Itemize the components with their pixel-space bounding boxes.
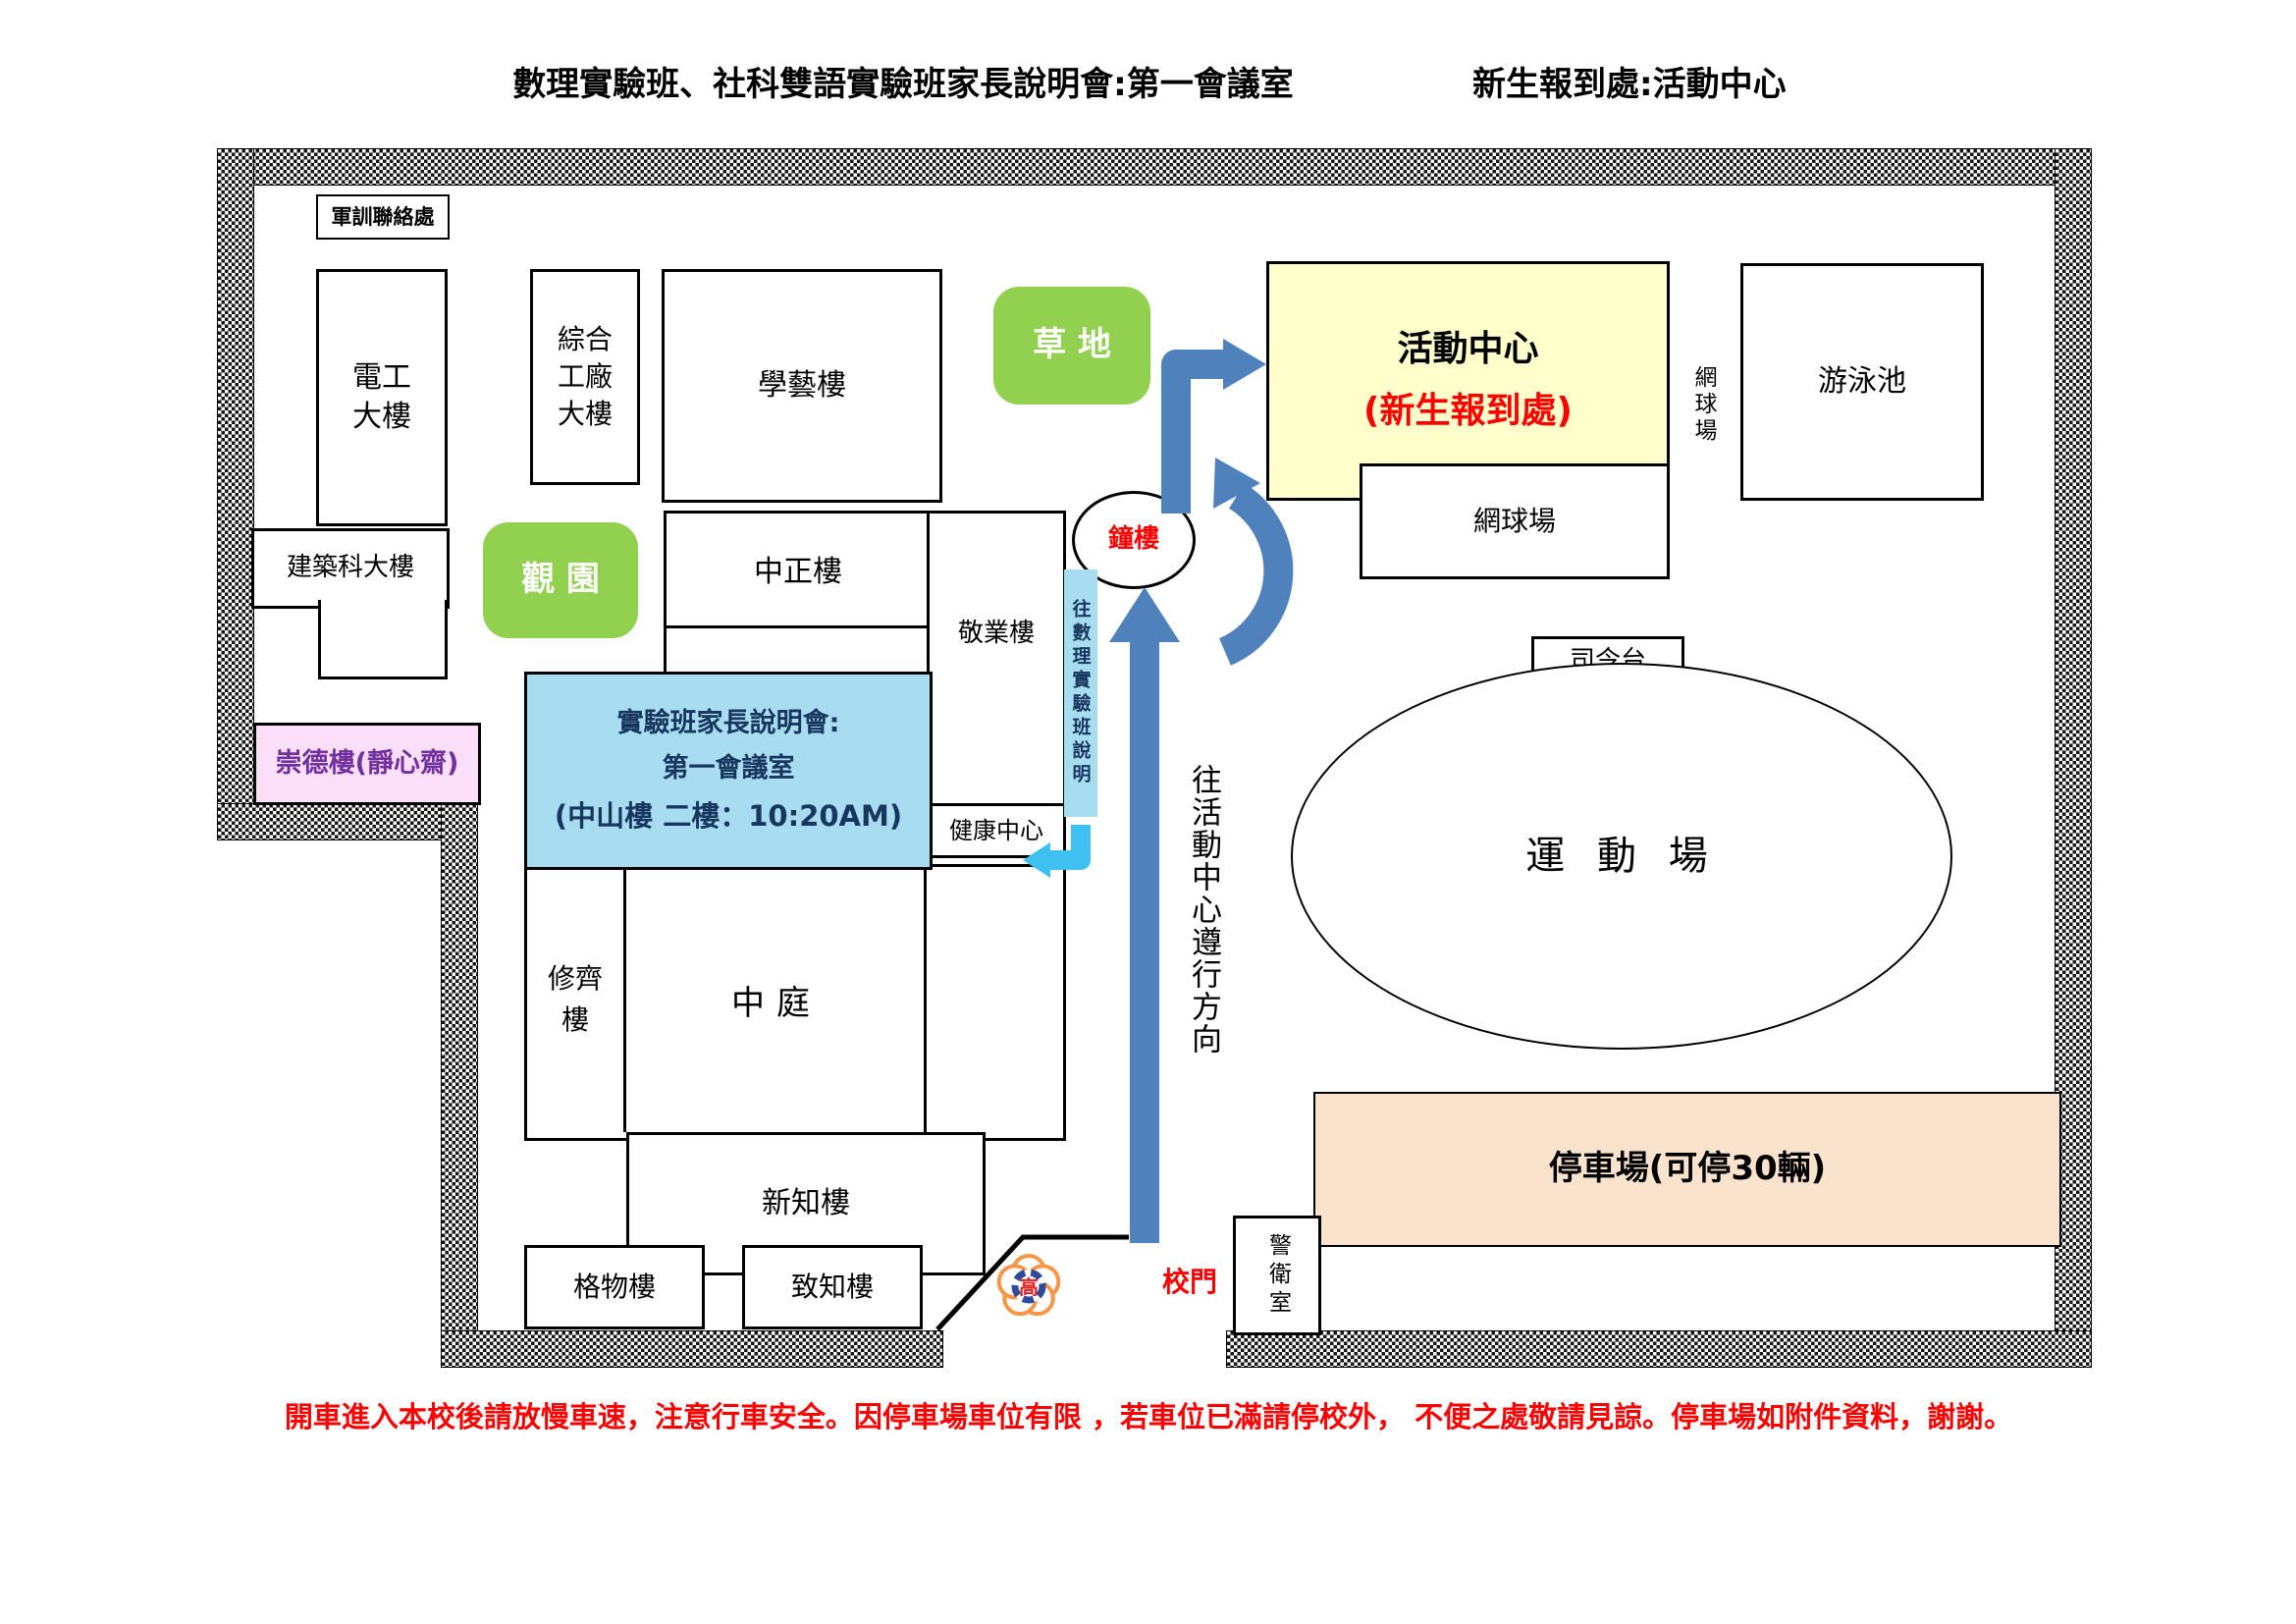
arrowhead-around-clocktower [1213,458,1260,509]
activity-center-name: 活動中心 [1397,326,1538,374]
briefing-line-3: (中山樓 二樓：10:20AM) [555,797,902,836]
guard-house: 警衛室 [1233,1216,1321,1335]
route-label-to-briefing: 往數理實驗班說明 [1064,569,1097,817]
logo-ring [1015,1272,1042,1300]
wall-left-lower [442,804,477,1367]
building-architecture-wing [318,600,448,679]
building-chongde: 崇德樓(靜心齋) [253,723,481,805]
arrow-around-clocktower [1225,496,1278,652]
briefing-line-2: 第一會議室 [663,751,795,786]
driving-notice: 開車進入本校後請放慢車速，注意行車安全。因停車場車位有限 ，若車位已滿請停校外，… [167,1394,2130,1435]
tennis-court: 網球場 [1360,463,1670,579]
wall-top [218,149,2091,185]
briefing-line-1: 實驗班家長說明會: [617,706,840,741]
sports-field: 運 動 場 [1291,663,1952,1050]
building-zhizhi: 致知樓 [742,1245,923,1329]
tennis-court-vertical-label: 網球場 [1686,365,1720,445]
wall-left-upper [218,149,253,839]
building-xiuqi: 修齊 樓 [524,864,626,1135]
building-electrical: 電工 大樓 [316,269,448,526]
garden-area: 觀 園 [483,522,638,638]
logo-petals [999,1256,1059,1314]
building-military-office: 軍訓聯絡處 [316,194,450,240]
route-label-to-activity-center: 往活動中心遵行方向 [1182,764,1226,1056]
building-health-center: 健康中心 [927,803,1066,858]
briefing-room-callout: 實驗班家長說明會: 第一會議室 (中山樓 二樓：10:20AM) [524,672,933,870]
activity-center-registration: (新生報到處) [1363,388,1573,436]
page-title-left: 數理實驗班、社科雙語實驗班家長說明會:第一會議室 [471,57,1335,105]
building-gewu: 格物樓 [524,1245,705,1329]
building-jingye-label: 敬業樓 [958,617,1035,651]
courtyard-label: 中庭 [626,864,927,1135]
building-architecture: 建築科大樓 [251,528,450,609]
arrow-to-activity-center [1176,364,1229,514]
page-title-right: 新生報到處:活動中心 [1472,57,1787,105]
arrowhead-to-activity-center [1223,339,1266,390]
arrow-gate-to-clocktower [1109,587,1180,1243]
gate-label: 校門 [1162,1261,1217,1300]
wall-bottom-right [1227,1331,2091,1367]
grass-area: 草 地 [993,287,1150,405]
wall-left-step [218,804,477,839]
campus-map: 數理實驗班、社科雙語實驗班家長說明會:第一會議室 新生報到處:活動中心 軍訓聯絡… [0,0,2296,1624]
wall-bottom-left [442,1331,942,1367]
guard-house-label: 警衛室 [1261,1233,1292,1319]
building-zhongzheng: 中正樓 [664,511,933,634]
logo-character: 高 [1019,1275,1039,1299]
building-workshop: 綜合 工廠 大樓 [530,269,640,485]
parking-lot: 停車場(可停30輛) [1313,1092,2061,1247]
school-logo: 高 [999,1256,1059,1314]
building-pool: 游泳池 [1740,263,1984,501]
building-xueyi: 學藝樓 [662,269,942,503]
